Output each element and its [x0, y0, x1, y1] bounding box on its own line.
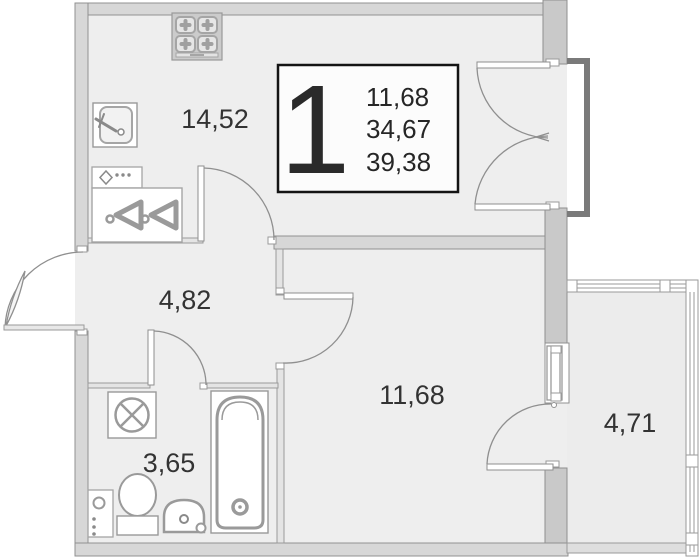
wall-bottom [75, 543, 568, 556]
french-door-leaf-bottom [475, 204, 550, 210]
tub-drain-dot [238, 505, 242, 509]
drain [118, 129, 124, 135]
balcony-door-opening-floor [545, 402, 567, 468]
bathtub-icon [211, 391, 268, 533]
balcony-glazing-right [686, 280, 698, 556]
french-door-leaf-top [477, 62, 550, 68]
floor-plan: 1 11,68 34,67 39,38 14,52 4,82 3,65 11,6… [0, 0, 700, 560]
wardrobe-body [92, 188, 182, 242]
basin-drain [180, 515, 188, 523]
window-sash [551, 352, 560, 394]
balcony-glazing-top [567, 280, 698, 292]
entrance-threshold [4, 325, 84, 330]
entrance-door-leaf [6, 271, 25, 326]
washing-machine-icon [108, 392, 156, 438]
unit-number: 1 [280, 59, 350, 200]
balcony-door-leaf [487, 464, 553, 470]
stove-icon [172, 13, 222, 60]
jamb-room-door-top [276, 288, 284, 294]
glazing-band [686, 280, 698, 556]
entrance-door [4, 252, 84, 330]
entrance-opening-floor [75, 252, 88, 331]
window-latch-bottom [551, 393, 561, 401]
room-label-living-room: 11,68 [379, 380, 445, 410]
unit-stat-2: 34,67 [366, 114, 431, 144]
window-latch-top [551, 346, 561, 353]
wall-bath-right [206, 383, 278, 388]
unit-stat-1: 11,68 [366, 82, 429, 112]
tub-frame [211, 391, 268, 533]
toilet-icon [117, 474, 158, 535]
riser-pipe [94, 498, 105, 509]
bathroom-door-leaf [148, 330, 154, 385]
cooktop-panel-icon [92, 167, 142, 188]
washbasin-icon [164, 500, 206, 533]
dot [115, 173, 118, 176]
room-label-bathroom: 3,65 [143, 448, 196, 478]
jamb-kitchen-door [268, 237, 276, 244]
glazing-band [567, 280, 698, 292]
unit-stat-3: 39,38 [366, 147, 431, 177]
balcony-bottom-edge [567, 543, 686, 553]
wall-right-top-block [543, 0, 567, 64]
dot [121, 173, 124, 176]
stove-handle [190, 54, 204, 56]
room-label-balcony: 4,71 [604, 408, 657, 438]
kitchen-door-leaf [198, 166, 204, 241]
living-room-door-leaf [284, 293, 353, 299]
dot [92, 532, 96, 536]
floor-plan-drawing: 1 11,68 34,67 39,38 14,52 4,82 3,65 11,6… [0, 0, 700, 560]
balcony-door-hinge [552, 403, 557, 408]
wall-left-upper [75, 3, 88, 251]
room-balcony-window [545, 343, 569, 403]
wall-right-mid-block [545, 208, 567, 343]
toilet-bowl [119, 474, 156, 516]
wardrobe-hangers-icon [92, 188, 182, 242]
wall-bath-room [277, 365, 284, 543]
unit-info-box: 1 11,68 34,67 39,38 [278, 59, 458, 200]
dot [127, 173, 130, 176]
dot [92, 525, 96, 529]
wall-top [75, 3, 545, 15]
towel-rail-icon [88, 490, 113, 537]
jamb-room-door-bottom [276, 363, 284, 369]
dot [92, 517, 96, 521]
basin-tap [197, 524, 206, 533]
wall-right-low-block [545, 468, 567, 543]
wall-bath-left [88, 383, 150, 388]
small-balcony-rail [567, 61, 587, 214]
room-label-kitchen: 14,52 [181, 104, 249, 134]
toilet-tank [117, 516, 158, 535]
room-label-hallway: 4,82 [159, 285, 212, 315]
french-door-opening-floor [545, 64, 567, 208]
kitchen-sink-icon [93, 103, 137, 147]
wall-kitchen-room [274, 236, 545, 249]
jamb-entrance-top [77, 246, 87, 252]
wall-left-lower [75, 331, 88, 556]
